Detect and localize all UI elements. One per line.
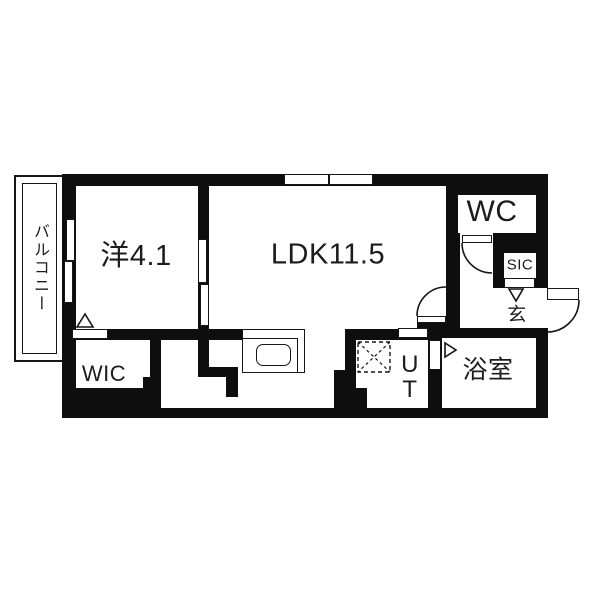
ldk-top-window: [329, 174, 373, 185]
kitchen-stub-wall: [208, 367, 238, 377]
utility-label-t: T: [401, 377, 419, 402]
ldk-label: LDK11.5: [271, 239, 385, 272]
entrance-door-leaf: [547, 288, 579, 300]
ut-step-wall: [356, 388, 367, 408]
bathroom-door: [429, 340, 441, 370]
wic-bottom-block: [62, 388, 161, 418]
bathroom-label: 浴室: [462, 350, 513, 386]
genkan-label: 玄: [507, 300, 527, 327]
kitchen-sink: [256, 344, 291, 366]
kitchen-step-wall: [226, 377, 238, 397]
entrance-door-swing-arc: [547, 300, 579, 332]
ut-opening: [398, 328, 428, 338]
bedroom-window: [64, 261, 73, 303]
wc-door-leaf: [462, 235, 492, 243]
kitchen-pass-gap: [305, 329, 345, 340]
bedroom-sliding-door: [200, 284, 209, 326]
utility-label-u: U: [401, 352, 419, 377]
wic-opening: [72, 329, 108, 339]
bedroom-label: 洋4.1: [100, 232, 171, 274]
ut-left-lower-block: [334, 370, 356, 408]
floor-plan: バルコニー 洋4.1 LDK11.5 WC SIC 玄 浴室 WIC U T: [0, 0, 600, 600]
utility-label: U T: [401, 352, 419, 402]
wic-step-wall: [143, 377, 161, 388]
sic-label: SIC: [507, 257, 534, 274]
bedroom-window: [66, 219, 75, 261]
shoe-cabinet: [504, 278, 535, 288]
balcony-label: バルコニー: [27, 223, 51, 313]
ldk-top-window: [284, 174, 329, 185]
bedroom-sliding-door: [198, 239, 207, 283]
wc-label: WC: [467, 195, 518, 229]
ldk-hall-door-leaf: [417, 316, 446, 323]
wic-label: WIC: [82, 361, 126, 387]
